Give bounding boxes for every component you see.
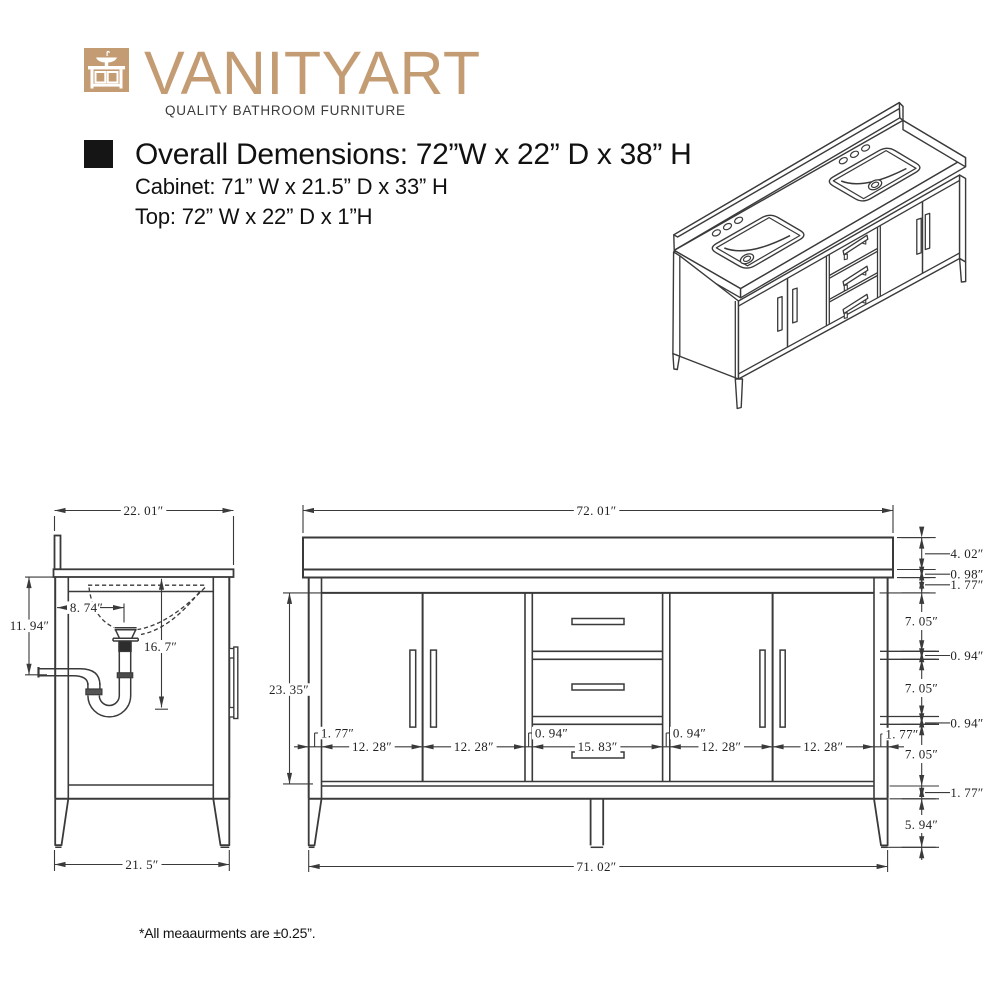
- svg-text:5. 94″: 5. 94″: [905, 817, 938, 832]
- svg-text:1. 77″: 1. 77″: [950, 577, 983, 592]
- svg-text:11. 94″: 11. 94″: [10, 618, 50, 633]
- svg-text:0. 94″: 0. 94″: [950, 715, 983, 730]
- svg-text:12. 28″: 12. 28″: [454, 739, 494, 754]
- svg-text:4. 02″: 4. 02″: [950, 546, 983, 561]
- svg-text:21. 5″: 21. 5″: [125, 857, 158, 872]
- svg-text:0. 94″: 0. 94″: [673, 725, 706, 740]
- svg-text:23. 35″: 23. 35″: [269, 682, 309, 697]
- svg-text:7. 05″: 7. 05″: [905, 746, 938, 761]
- svg-text:0. 94″: 0. 94″: [950, 648, 983, 663]
- svg-text:0. 94″: 0. 94″: [535, 725, 568, 740]
- svg-text:12. 28″: 12. 28″: [352, 739, 392, 754]
- svg-text:1. 77″: 1. 77″: [321, 725, 354, 740]
- svg-text:72. 01″: 72. 01″: [576, 503, 616, 518]
- svg-text:7. 05″: 7. 05″: [905, 613, 938, 628]
- svg-text:7. 05″: 7. 05″: [905, 681, 938, 696]
- svg-text:12. 28″: 12. 28″: [803, 739, 843, 754]
- svg-text:12. 28″: 12. 28″: [701, 739, 741, 754]
- svg-text:16. 7″: 16. 7″: [144, 639, 177, 654]
- svg-text:1. 77″: 1. 77″: [885, 726, 918, 741]
- svg-text:1. 77″: 1. 77″: [950, 785, 983, 800]
- svg-text:71. 02″: 71. 02″: [576, 859, 616, 874]
- svg-text:22. 01″: 22. 01″: [123, 503, 163, 518]
- svg-text:15. 83″: 15. 83″: [578, 739, 618, 754]
- svg-text:8. 74″: 8. 74″: [70, 600, 103, 615]
